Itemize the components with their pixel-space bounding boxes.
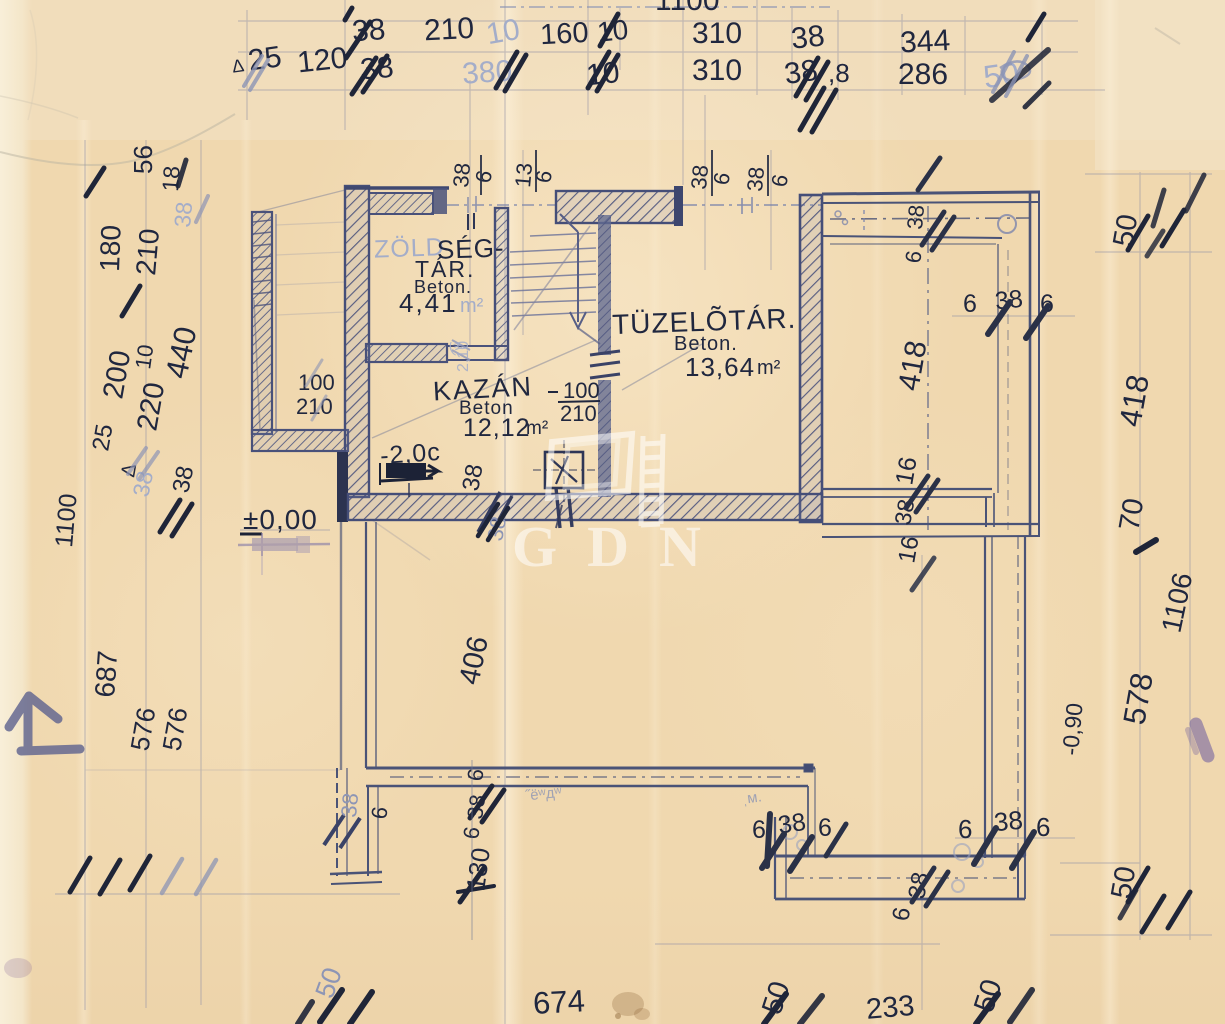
svg-text:100: 100 [298, 370, 335, 395]
svg-text:,8: ,8 [828, 58, 850, 88]
svg-text:38: 38 [169, 201, 197, 229]
svg-text:ˌм.: ˌм. [741, 788, 763, 808]
svg-text:6: 6 [958, 814, 972, 844]
svg-text:GDN: GDN [512, 514, 731, 579]
svg-text:6: 6 [752, 816, 766, 844]
svg-text:6: 6 [1036, 812, 1050, 842]
svg-text:38: 38 [993, 805, 1024, 837]
svg-text:56: 56 [128, 145, 158, 174]
svg-text:1100: 1100 [655, 0, 720, 17]
svg-text:m²: m² [757, 357, 781, 379]
svg-text:286: 286 [898, 58, 948, 91]
svg-text:38: 38 [790, 19, 827, 55]
svg-text:160: 160 [539, 17, 589, 51]
svg-text:687: 687 [89, 650, 123, 699]
svg-text:10: 10 [130, 343, 158, 371]
svg-text:m²: m² [460, 295, 484, 317]
svg-text:6: 6 [818, 814, 832, 842]
svg-text:12,12: 12,12 [463, 414, 531, 442]
svg-text:674: 674 [532, 983, 585, 1021]
svg-text:m²: m² [526, 418, 548, 439]
svg-text:38: 38 [457, 462, 488, 493]
svg-text:16: 16 [890, 455, 922, 487]
svg-text:70: 70 [1113, 496, 1150, 533]
svg-text:38: 38 [167, 464, 199, 496]
svg-text:16: 16 [893, 534, 924, 565]
svg-text:38: 38 [336, 792, 363, 819]
svg-text:210: 210 [560, 401, 597, 426]
svg-text:310: 310 [692, 17, 742, 50]
svg-text:25: 25 [87, 422, 118, 453]
svg-text:6: 6 [963, 290, 977, 318]
svg-text:120: 120 [296, 41, 349, 79]
svg-text:344: 344 [899, 24, 951, 60]
svg-text:210: 210 [423, 12, 475, 48]
svg-text:1100: 1100 [50, 493, 83, 549]
svg-text:±0,00: ±0,00 [243, 504, 318, 535]
svg-text:13,64: 13,64 [685, 352, 755, 382]
svg-text:4,41: 4,41 [399, 288, 458, 318]
svg-text:38: 38 [742, 166, 769, 193]
svg-text:38: 38 [902, 204, 929, 231]
svg-text:10: 10 [484, 13, 523, 51]
svg-text:-0,90: -0,90 [1057, 702, 1087, 757]
svg-text:210: 210 [130, 227, 165, 276]
svg-text:180: 180 [94, 224, 127, 272]
svg-text:100: 100 [563, 378, 600, 403]
svg-text:310: 310 [692, 54, 742, 87]
svg-text:233: 233 [865, 990, 916, 1024]
